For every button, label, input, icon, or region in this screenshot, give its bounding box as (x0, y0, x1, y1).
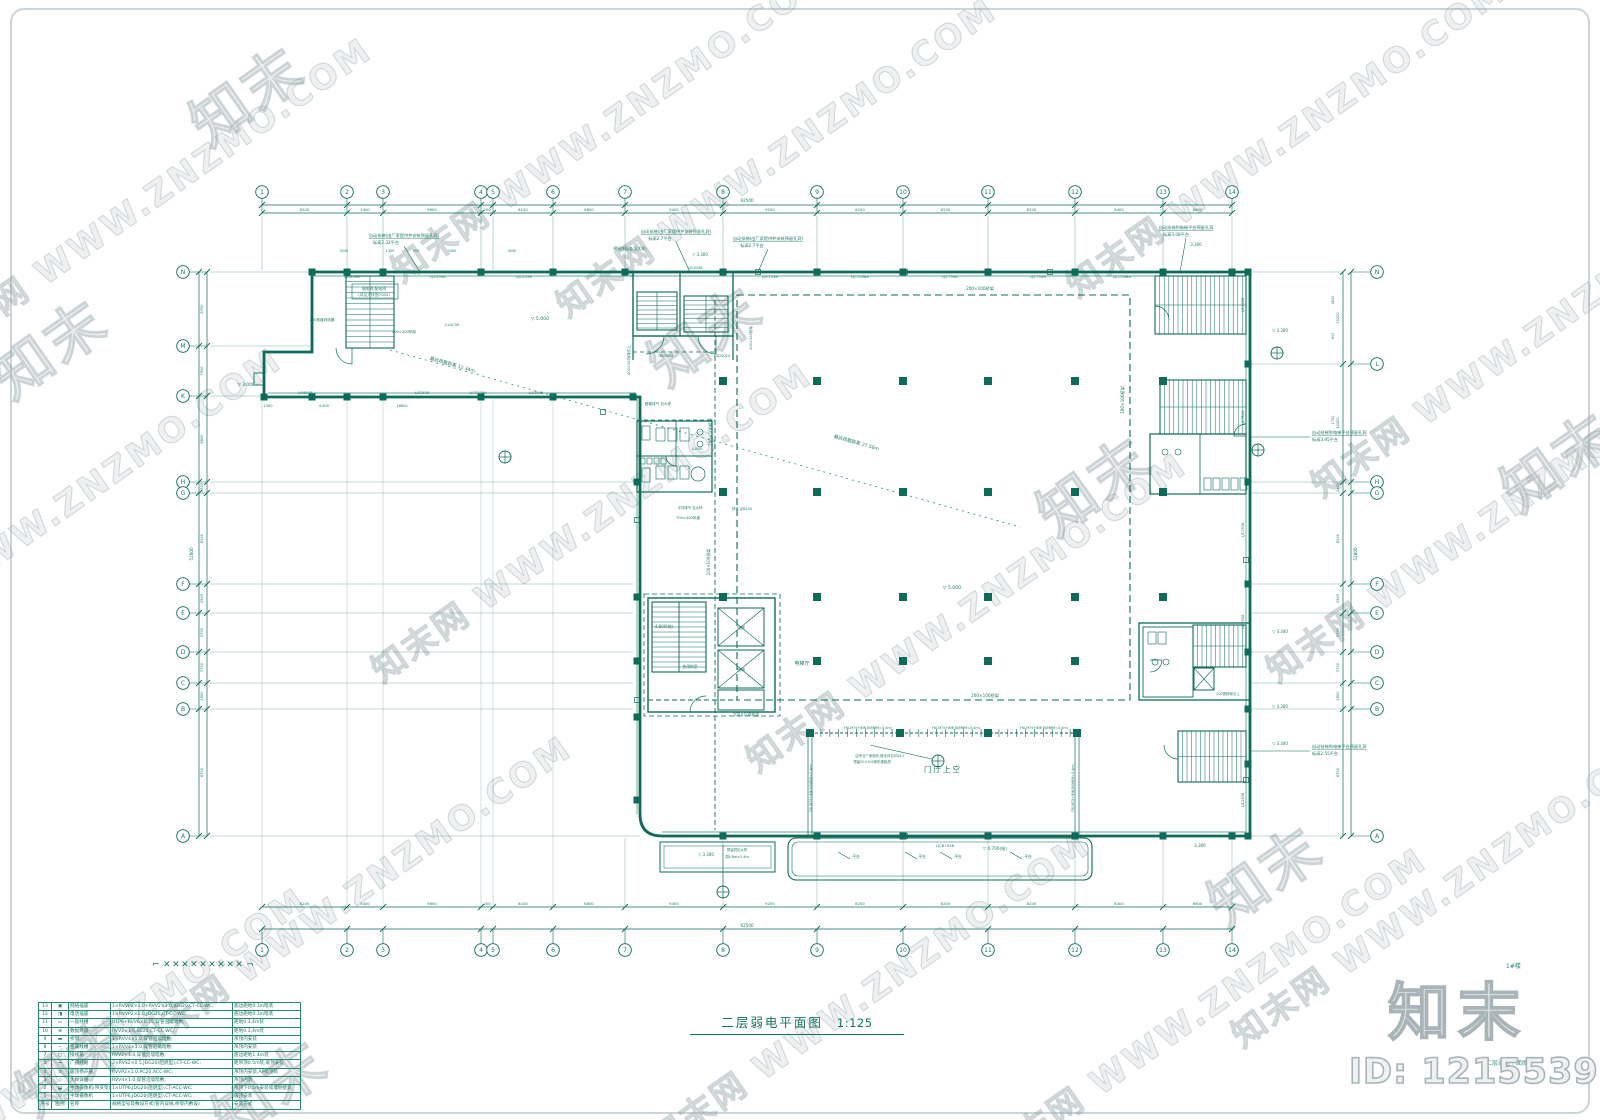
dim-text: 9200 (765, 901, 775, 906)
plan-circle (691, 467, 705, 481)
legend-cell-no: 9 (39, 1035, 52, 1043)
legend-cell-note: 距地0.3,4m装 (233, 1019, 301, 1027)
dim-text: 8200 (1336, 533, 1340, 543)
dim-text: 8200 (1027, 901, 1037, 906)
plan-label: 100×100桥架 (705, 549, 711, 576)
fixture (680, 428, 689, 441)
plan-label: 合用前室 (682, 664, 697, 669)
column (984, 729, 992, 737)
grid-bubble-label: 1 (260, 189, 264, 196)
legend-cell-spec: 1×UTP6,JDG20(阻燃型),CT-ACC-WC; (111, 1093, 233, 1101)
dim-text: 9200 (765, 207, 775, 212)
dim-text: 6700 (200, 304, 204, 314)
asset-id: ID: 1215539526 (1349, 1052, 1600, 1092)
plan-label: 600 (1331, 333, 1335, 339)
plan-label: 标高3.95平台 (1312, 436, 1338, 443)
door-arc (666, 456, 676, 466)
column (813, 657, 821, 665)
plan-circle (1175, 449, 1181, 455)
column (1229, 833, 1236, 840)
plan-label: 700 (413, 249, 419, 253)
plan-label: LJC2538 (415, 391, 430, 395)
plan-label: 1300 (386, 249, 395, 253)
legend-cell-name: 接线箱 (69, 1052, 111, 1060)
column (1159, 593, 1167, 601)
legend-cell-sym: ⬓ (52, 1085, 69, 1093)
plan-line (1180, 238, 1186, 272)
toilet (1150, 434, 1246, 494)
grid-bubble-label: 10 (899, 947, 907, 954)
grid-bubble-label: 14 (1228, 189, 1236, 196)
dim-text: 6600 (1193, 901, 1203, 906)
plan-label: 弱电间,配电间 (362, 286, 386, 291)
fixture (668, 466, 677, 479)
column (1245, 706, 1252, 713)
legend-cell-name: 数据终端 (69, 1027, 111, 1035)
cable-tray (737, 295, 1130, 700)
column (634, 797, 641, 804)
plan-label: 标高2.55平台 (1312, 750, 1338, 757)
door-arc (336, 348, 352, 364)
fixture (1148, 632, 1156, 644)
plan-label: 400×300桥架引上 (626, 345, 631, 375)
fixture (1213, 478, 1220, 490)
plan-label: 平台 (918, 854, 926, 859)
grid-bubble-label: 14 (1228, 947, 1236, 954)
plan-label: 自动扶梯(由厂家提供并安装预留孔洞) (641, 228, 712, 235)
dim-text: 7500 (200, 366, 204, 376)
plan-label: LJC2538 (516, 274, 532, 279)
plan-label: 预留排烟道(见大样) (613, 246, 647, 251)
legend-row: 12◨电话插座1×RVVP2×1.0,JDG20,CT-CC-WC;底边距地0.… (39, 1011, 301, 1019)
grid-bubble-label: 3 (381, 947, 385, 954)
column (719, 488, 727, 496)
grid-bubble-label: 7 (623, 947, 627, 954)
legend-cell-spec: RVV2×1.0,SC25,CT-CC-WC; (111, 1027, 233, 1035)
column (1071, 593, 1079, 601)
plan-label: 平台 (1024, 854, 1032, 859)
plan-label: 4.800 (692, 446, 703, 451)
legend-cell-no: 7 (39, 1052, 52, 1060)
dim-text: 8400 (1114, 901, 1124, 906)
plan-label: LJC67038 (936, 843, 955, 848)
plan-label: 1300 (263, 404, 273, 408)
legend-cell-spec: 规格型号及敷设方式(管内穿线,桥架内敷设) (111, 1101, 233, 1109)
dim-text: 6100 (518, 207, 528, 212)
legend-cell-sym: ▬ (52, 1035, 69, 1043)
platform (660, 842, 775, 872)
column (1159, 488, 1167, 496)
plan-label: 200×100桥架 (966, 285, 994, 292)
fixture (656, 428, 665, 441)
plan-circle (697, 429, 703, 435)
column (985, 833, 992, 840)
grid-bubble-label: 3 (381, 189, 385, 196)
plan-label: ▽ 3.000 (237, 382, 255, 388)
plan-label: FXD5024 (714, 354, 731, 358)
grid-bubble-label: C (1375, 680, 1379, 687)
grid-bubble-label: D (1375, 649, 1380, 656)
dim-text: 6100 (518, 901, 528, 906)
column (1071, 657, 1079, 665)
grid-bubble-label: 13 (1159, 189, 1167, 196)
dim-total: 92500 (740, 923, 754, 928)
column (380, 394, 387, 401)
column (1245, 649, 1252, 656)
legend-row: 1▽半球摄像机1×UTP6,JDG20(阻燃型),CT-ACC-WC;吸顶安装 (39, 1093, 301, 1101)
legend-row: 2⬓半球摄像机(带支架)1×UTP6,JDG20(阻燃型),CT-ACC-WC;… (39, 1085, 301, 1093)
dim-text: 6800 (584, 901, 594, 906)
dim-text: 3700 (1336, 662, 1340, 672)
plan-label: 200×100桥架 (748, 326, 753, 350)
legend-cell-note: 底边距地0.3m暗装 (233, 1003, 301, 1011)
legend-cell-no: 8 (39, 1044, 52, 1052)
grid-bubble-label: 9 (815, 189, 819, 196)
column (814, 833, 821, 840)
legend-cell-name: 吸顶扬声器 (69, 1068, 111, 1076)
plan-label: LJC2538 (1241, 522, 1245, 537)
legend-cell-name: 网络插座 (69, 1003, 111, 1011)
dim-text: 8200 (855, 207, 865, 212)
legend-cell-name: 桥架 (69, 1035, 111, 1043)
column (622, 269, 629, 276)
plan-label: FKLM75+8M(8XM8M=3.4m) (1071, 763, 1075, 812)
plan-label: 电梯 (737, 625, 745, 630)
dim-text: 2500 (1336, 593, 1340, 603)
columns-layer (261, 269, 1252, 840)
grid-bubble-label: 12 (1071, 947, 1079, 954)
plan-label: 2×SC50 (445, 323, 460, 327)
column (380, 269, 387, 276)
legend-cell-no: 序号 (39, 1101, 52, 1109)
dim-text: 8200 (300, 207, 310, 212)
floor-plan-svg: 9250092500118200820022340034003396009600… (0, 0, 1600, 1120)
plan-label: LJC7538 (1030, 274, 1046, 279)
legend-cell-no: 5 (39, 1060, 52, 1068)
plan-label: 自动扶梯到电梯平台预留孔洞 (1159, 224, 1213, 231)
plan-label: LJC7538 (1241, 614, 1245, 629)
legend-cell-note: 距吊顶0.5m装,吸顶安装 (233, 1060, 301, 1068)
legend-cell-sym: ▽ (52, 1093, 69, 1101)
plan-label: 自动扶梯(由厂家提供并安装预留孔洞) (733, 235, 804, 242)
column (1160, 833, 1167, 840)
plan-label: 4,600 (319, 404, 330, 408)
toilet (637, 421, 712, 492)
column (1071, 488, 1079, 496)
column (899, 593, 907, 601)
dim-text: 9400 (669, 901, 679, 906)
plan-label: 自动扶梯到电梯平台预留孔洞 (1312, 743, 1366, 750)
grid-bubble-label: G (181, 490, 186, 497)
legend-cell-no: 4 (39, 1068, 52, 1076)
column (985, 269, 992, 276)
platform-inner (664, 846, 771, 868)
fixture (661, 458, 666, 464)
plan-label: 5200 (340, 249, 349, 253)
legend-cell-sym: ◨ (52, 1011, 69, 1019)
tray-layer (390, 295, 1130, 830)
dim-text: 9600 (427, 207, 437, 212)
plan-label: 标高2.32平台 (373, 239, 399, 246)
plan-label: LJC6538 (298, 391, 313, 395)
plan-label: 4.800(结) (655, 623, 674, 629)
column (813, 593, 821, 601)
plan-label: 洞4.8m×2.4m (725, 854, 749, 859)
legend-cell-name: 半球摄像机(带支架) (69, 1085, 111, 1093)
plan-label: 700×400风道 (676, 515, 700, 520)
legend-cell-note: 吊顶内装 (233, 1076, 301, 1084)
dim-text: 8400 (1114, 207, 1124, 212)
column (984, 657, 992, 665)
plan-label: 3000 (508, 249, 517, 253)
fixture (1222, 478, 1229, 490)
plan-label: 200宽镀锌线槽 (310, 317, 335, 322)
legend-cell-sym: ─ (52, 1044, 69, 1052)
plan-label: 400×300桥架 (392, 329, 416, 334)
dim-text: 3700 (200, 662, 204, 672)
legend-cell-sym: ◇ (52, 1076, 69, 1084)
legend-header-row: 序号图例名称规格型号及敷设方式(管内穿线,桥架内敷设)安装方式 (39, 1101, 301, 1109)
plan-label: LJC7538 (762, 274, 778, 279)
column (478, 269, 485, 276)
grid-bubble-label: 10 (899, 189, 907, 196)
plan-label: 3,300 (1194, 843, 1206, 848)
dim-text: 3400 (360, 207, 370, 212)
legend-row: 4⊙吸顶扬声器RVVP2×1.0,PC20,ACC-WC;吊顶内安装,AP吸顶装 (39, 1068, 301, 1076)
plan-line (940, 852, 952, 859)
legend-row: 11▭一般线槽UTP6+RVV6×0.75,穿管沿墙暗敷;距地0.3,4m装 (39, 1019, 301, 1027)
fixture (1158, 632, 1166, 644)
column (896, 729, 904, 737)
plan-label: ▽ 3.300 (1272, 328, 1288, 333)
door-arc (698, 336, 716, 354)
column (984, 593, 992, 601)
column (900, 833, 907, 840)
grid-bubble-label: 5 (491, 189, 495, 196)
legend-cell-name: 半球摄像机 (69, 1093, 111, 1101)
dim-text: 200 (483, 901, 491, 906)
legend-cell-note: 底边距地1.4m装 (233, 1052, 301, 1060)
legend-cell-name: 金属线槽 (69, 1044, 111, 1052)
grid-bubble-label: 6 (551, 947, 555, 954)
grid-bubble-label: M (180, 343, 185, 350)
plan-label: 排气 见B100 (732, 506, 752, 511)
column (1245, 479, 1252, 486)
column (634, 658, 641, 665)
fence-marks: ✕✕✕✕✕✕✕✕✕ (152, 960, 255, 970)
column (1072, 269, 1079, 276)
plan-label: 楼梯排气 见大样 (645, 401, 672, 406)
fixture (647, 458, 652, 464)
fixture (1204, 478, 1211, 490)
plan-rect (642, 468, 650, 482)
fixture (654, 458, 659, 464)
grid-bubble-label: N (181, 269, 186, 276)
dim-text: 1300 (1336, 482, 1340, 492)
column (634, 714, 641, 721)
legend-cell-sym: ▢ (52, 1052, 69, 1060)
plan-line (838, 852, 850, 859)
plan-label: 自动扶梯到电梯平台预留孔洞 (1312, 429, 1366, 436)
cad-drawing-page: 知末网 WWW.ZNZMO.COM知末网 WWW.ZNZMO.COM知末网 WW… (0, 0, 1600, 1120)
legend-cell-no: 12 (39, 1011, 52, 1019)
grid-bubble-label: F (181, 581, 185, 588)
legend-cell-sym: ▣ (52, 1003, 69, 1011)
grid-bubble-label: 6 (551, 189, 555, 196)
legend-cell-note: 吊顶下0.5m安装或墙侧壁装 (233, 1085, 301, 1093)
dim-total: 52800 (189, 547, 194, 561)
column (344, 394, 351, 401)
column (900, 269, 907, 276)
plan-circle (1162, 449, 1168, 455)
legend-cell-spec: RVV2×1.0,穿管沿墙暗敷; (111, 1052, 233, 1060)
column (720, 833, 727, 840)
plan-label: 平顶排气 见大样 (678, 505, 703, 510)
column (1245, 833, 1252, 840)
legend-cell-no: 13 (39, 1003, 52, 1011)
column (813, 377, 821, 385)
dim-text: 9400 (669, 207, 679, 212)
legend-cell-note: 安装方式 (233, 1101, 301, 1109)
column (634, 594, 641, 601)
grid-bubble-label: N (1375, 269, 1380, 276)
legend-cell-sym: ▭ (52, 1019, 69, 1027)
grid-bubble-label: 1 (260, 947, 264, 954)
legend-row: 13▣网络插座1×RVVP2×1.0+RVV2×1.0,JDG20,CT-CC-… (39, 1003, 301, 1011)
plan-label: 门厅上空 (924, 764, 962, 774)
plan-label: 100×100桥架 (733, 711, 760, 717)
plan-label: 预留50×100条形楼板洞 (853, 759, 891, 764)
plan-label: ▽ 3.300 (692, 252, 708, 257)
legend-row: 9▬桥架1×RVV4×1.0,穿管沿墙暗敷;吊顶内安装 (39, 1035, 301, 1043)
dim-total: 92500 (740, 198, 754, 203)
grid-bubble-label: B (1375, 706, 1379, 713)
column (719, 377, 727, 385)
legend-cell-spec: RVV4×1.0,穿管沿墙暗敷; (111, 1076, 233, 1084)
grid-bubble-label: 2 (345, 947, 349, 954)
grid-bubble-label: 13 (1159, 947, 1167, 954)
ledge (254, 373, 264, 385)
column (261, 394, 268, 401)
grid-bubble-label: 4 (479, 189, 483, 196)
dim-total: 52800 (1353, 547, 1358, 561)
grid-layer: 9250092500118200820022340034003396009600… (177, 186, 1384, 957)
dim-text: 3700 (1336, 627, 1340, 637)
column (899, 657, 907, 665)
column (1245, 269, 1252, 276)
dim-text: 8200 (200, 533, 204, 543)
stair-core (633, 272, 733, 336)
legend-cell-spec: 1×RVV4×1.0,穿管沿墙暗敷; (111, 1044, 233, 1052)
column (813, 488, 821, 496)
grid-bubble-label: D (181, 649, 186, 656)
grid-bubble-label: 11 (984, 189, 992, 196)
plan-label: ▽ 3.300 (698, 852, 714, 857)
dim-text: 6800 (584, 207, 594, 212)
door-arc (1155, 306, 1169, 320)
plan-label: LJC2538 (529, 391, 544, 395)
legend-cell-note: 吊顶内安装,AP吸顶装 (233, 1068, 301, 1076)
drawing-title-text: 二层弱电平面图 (721, 1015, 823, 1030)
legend-cell-sym: 图例 (52, 1101, 69, 1109)
fixture (1231, 478, 1238, 490)
legend-row: 3◇大样详图RVV4×1.0,穿管沿墙暗敷;吊顶内装 (39, 1076, 301, 1084)
plan-label: 200×100桥架 (707, 418, 714, 446)
plan-label: LJC3038 (688, 266, 703, 270)
grid-bubble-label: 8 (721, 947, 725, 954)
dim-text: 8200 (941, 901, 951, 906)
column (630, 394, 637, 401)
door-arc (646, 336, 664, 354)
column (984, 488, 992, 496)
plan-label: LJC7538A (1113, 274, 1132, 279)
plan-label: 3,300 (1190, 242, 1202, 247)
dim-text: 2500 (1336, 691, 1340, 701)
grid-bubble-label: 5 (491, 947, 495, 954)
dim-text: 8200 (300, 901, 310, 906)
legend-cell-note: 底边距地0.3m暗装 (233, 1011, 301, 1019)
grid-bubble-label: B (181, 706, 185, 713)
plan-label: ▽ 5.000 (531, 316, 549, 322)
column (550, 269, 557, 276)
stair-core (648, 598, 775, 712)
cores-layer (336, 270, 1250, 839)
column (1073, 729, 1081, 737)
dim-text: 8200 (855, 901, 865, 906)
legend-cell-note: 距地0.3,4m装 (233, 1027, 301, 1035)
legend-cell-no: 10 (39, 1027, 52, 1035)
plan-label: FKLM75+8M(8XM8M=3.4m) (932, 726, 981, 730)
dim-text: 2500 (200, 593, 204, 603)
plan-label: LJC2538 (1241, 297, 1245, 312)
dim-text: 9600 (427, 901, 437, 906)
grid-bubble-label: C (181, 680, 185, 687)
grid-bubble-label: 8 (721, 189, 725, 196)
legend-cell-name: 一般线槽 (69, 1019, 111, 1027)
plan-label: 电梯厅 (794, 660, 809, 667)
legend-cell-no: 3 (39, 1076, 52, 1084)
plan-label: LJC2538 (1241, 792, 1245, 807)
plan-label: LJC7538 (942, 274, 958, 279)
fixture (680, 466, 689, 479)
dim-text: 8200 (1027, 207, 1037, 212)
exterior-wall (264, 272, 1250, 836)
plan-label: 200×100桥架 (1119, 386, 1126, 414)
plan-label: 最远疏散距离 27.58m (833, 433, 880, 453)
legend-row: 5━广播线路2×RVS2×0.5,JDG20(阻燃型),CT-CC-WC;距吊顶… (39, 1060, 301, 1068)
column (1245, 361, 1252, 368)
plan-rect (642, 426, 650, 440)
plan-label: 标高3.08平台 (1163, 231, 1189, 238)
plan-label: FKLM75+8M(8XM8M=3.4m) (844, 726, 893, 730)
drawing-scale: 1:125 (837, 1016, 873, 1030)
grid-bubble-label: 7 (623, 189, 627, 196)
plan-label: 平台 (852, 854, 860, 859)
znzmo-logo: 知末 (1388, 962, 1528, 1052)
plan-label: 标高2.7平台 (740, 242, 763, 249)
dim-text: 8700 (1336, 767, 1340, 777)
plan-label: FKLM75+8M(8XM8M=3.4m) (809, 763, 813, 812)
column (720, 269, 727, 276)
grid-bubble-label: E (1375, 610, 1379, 617)
column (309, 269, 316, 276)
plan-circle (1163, 659, 1169, 665)
legend-cell-spec: 1×UTP6,JDG20(阻燃型),CT-ACC-WC; (111, 1085, 233, 1093)
walls-layer (254, 238, 1310, 880)
legend-row: 8─金属线槽1×RVV4×1.0,穿管沿墙暗敷;吊顶内安装 (39, 1044, 301, 1052)
column (1072, 833, 1079, 840)
plan-label: 4600 (1331, 296, 1335, 305)
